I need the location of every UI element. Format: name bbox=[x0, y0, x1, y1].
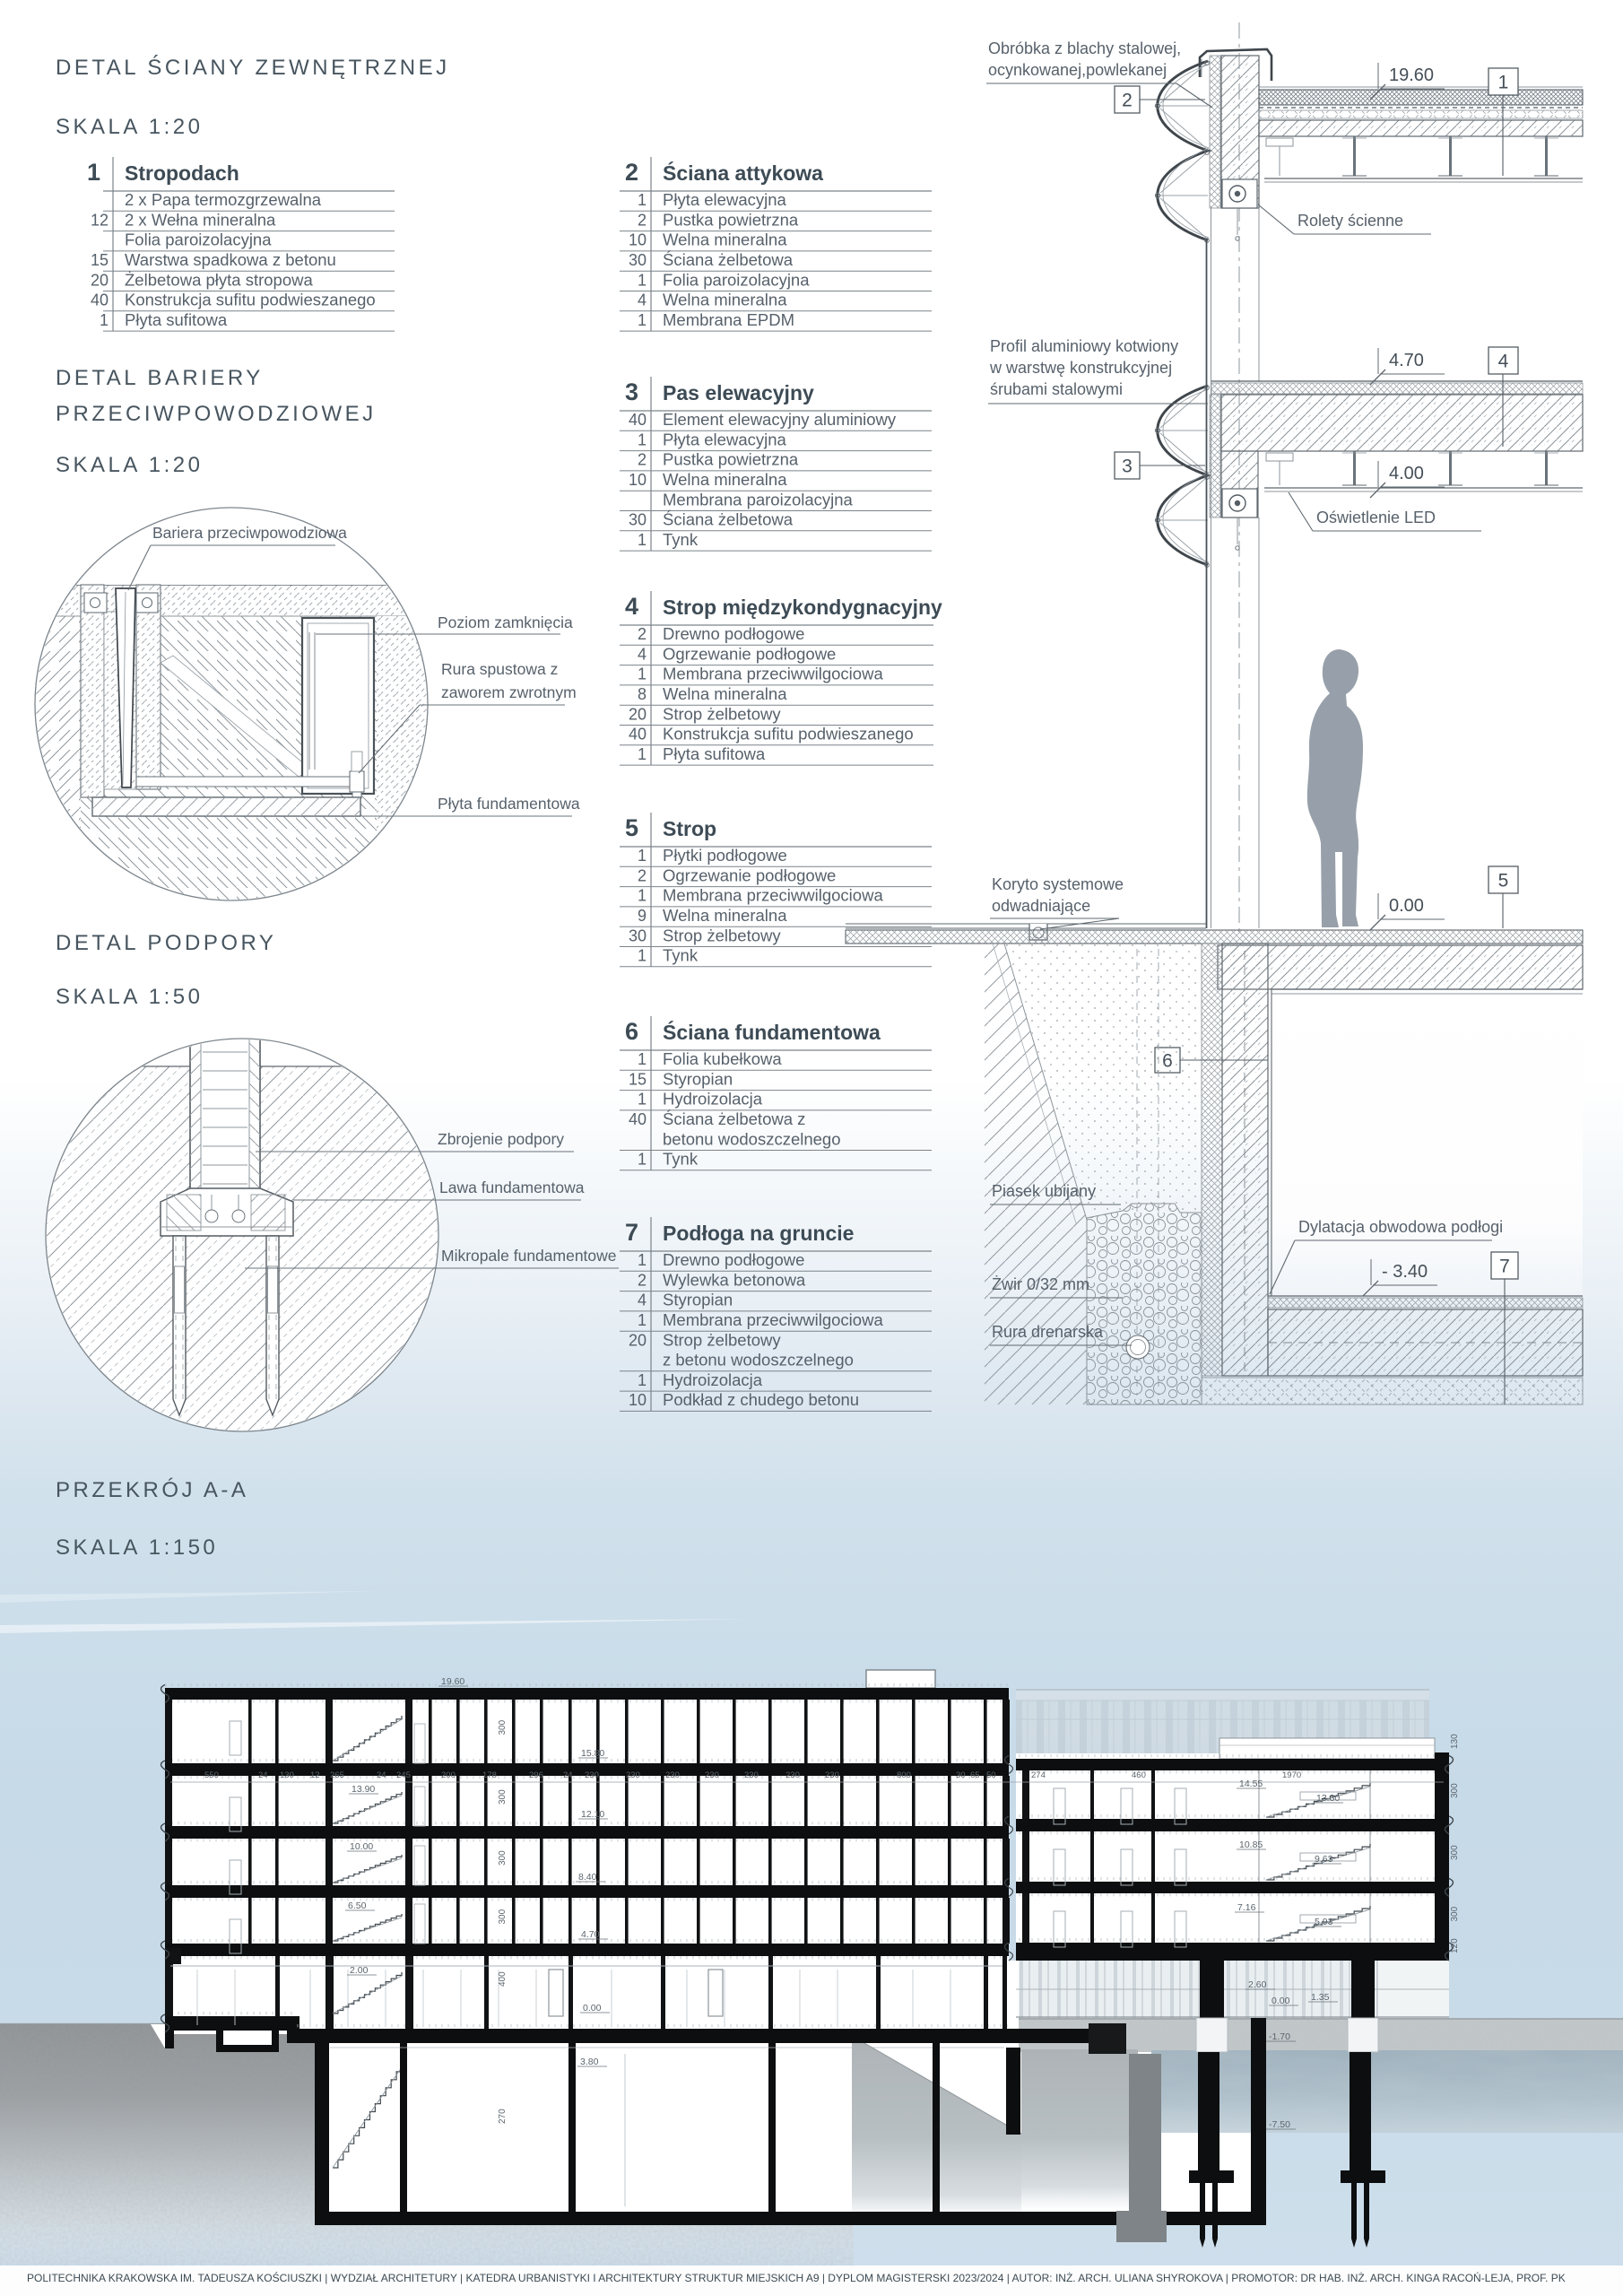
svg-text:Płyta elewacyjna: Płyta elewacyjna bbox=[663, 430, 787, 448]
svg-text:8: 8 bbox=[638, 685, 647, 703]
svg-text:2 x Papa termozgrzewalna: 2 x Papa termozgrzewalna bbox=[125, 190, 322, 209]
svg-text:5: 5 bbox=[1498, 871, 1509, 891]
svg-text:5.93: 5.93 bbox=[1315, 1917, 1333, 1927]
svg-text:274: 274 bbox=[1031, 1770, 1046, 1780]
svg-text:300: 300 bbox=[1450, 1845, 1460, 1860]
svg-text:betonu wodoszczelnego: betonu wodoszczelnego bbox=[663, 1129, 841, 1148]
svg-text:30: 30 bbox=[629, 511, 647, 529]
svg-text:460: 460 bbox=[1132, 1770, 1146, 1780]
svg-text:300: 300 bbox=[498, 1909, 508, 1924]
svg-text:130: 130 bbox=[1450, 1734, 1460, 1749]
svg-text:2: 2 bbox=[638, 211, 647, 229]
svg-text:2: 2 bbox=[625, 159, 638, 186]
svg-text:2 x Wełna mineralna: 2 x Wełna mineralna bbox=[125, 210, 276, 229]
svg-text:Tynk: Tynk bbox=[663, 946, 699, 965]
svg-text:Pas elewacyjny: Pas elewacyjny bbox=[663, 381, 814, 404]
svg-text:Drewno podłogowe: Drewno podłogowe bbox=[663, 624, 804, 643]
svg-text:2: 2 bbox=[638, 451, 647, 469]
svg-text:Pustka powietrzna: Pustka powietrzna bbox=[663, 210, 799, 229]
svg-text:550: 550 bbox=[204, 1770, 219, 1780]
svg-text:0.00: 0.00 bbox=[583, 2003, 602, 2013]
svg-text:Podłoga na gruncie: Podłoga na gruncie bbox=[663, 1222, 854, 1245]
svg-text:z betonu wodoszczelnego: z betonu wodoszczelnego bbox=[663, 1351, 854, 1370]
svg-text:Welna mineralna: Welna mineralna bbox=[663, 291, 787, 309]
svg-text:w warstwę konstrukcyjnej: w warstwę konstrukcyjnej bbox=[989, 359, 1172, 377]
svg-text:Welna mineralna: Welna mineralna bbox=[663, 230, 787, 249]
svg-text:4: 4 bbox=[638, 645, 647, 663]
svg-text:12.10: 12.10 bbox=[581, 1809, 604, 1820]
svg-text:Welna mineralna: Welna mineralna bbox=[663, 470, 787, 489]
svg-text:Wylewka betonowa: Wylewka betonowa bbox=[663, 1270, 806, 1289]
svg-text:24: 24 bbox=[563, 1770, 573, 1780]
svg-text:Tynk: Tynk bbox=[663, 1150, 699, 1169]
svg-text:300: 300 bbox=[1450, 1906, 1460, 1921]
svg-text:4.70: 4.70 bbox=[581, 1929, 600, 1940]
svg-text:Lawa fundamentowa: Lawa fundamentowa bbox=[439, 1178, 585, 1196]
svg-text:1: 1 bbox=[638, 191, 647, 209]
svg-text:19.60: 19.60 bbox=[1389, 65, 1434, 85]
svg-text:2: 2 bbox=[638, 625, 647, 643]
svg-text:2.00: 2.00 bbox=[350, 1965, 369, 1976]
svg-text:30: 30 bbox=[629, 251, 647, 269]
svg-text:24: 24 bbox=[258, 1770, 268, 1780]
svg-text:40: 40 bbox=[629, 726, 647, 744]
svg-text:15: 15 bbox=[91, 251, 108, 269]
svg-text:Welna mineralna: Welna mineralna bbox=[663, 906, 787, 925]
svg-text:1: 1 bbox=[638, 531, 647, 549]
svg-text:3: 3 bbox=[1122, 457, 1133, 477]
svg-text:12: 12 bbox=[91, 211, 108, 229]
svg-text:200: 200 bbox=[441, 1770, 456, 1780]
svg-text:Żelbetowa płyta stropowa: Żelbetowa płyta stropowa bbox=[125, 270, 313, 289]
svg-text:odwadniające: odwadniające bbox=[992, 897, 1090, 915]
svg-text:Rura spustowa z: Rura spustowa z bbox=[441, 660, 558, 678]
svg-text:Profil aluminiowy kotwiony: Profil aluminiowy kotwiony bbox=[990, 337, 1178, 355]
svg-text:120: 120 bbox=[1450, 1938, 1460, 1953]
svg-text:Strop żelbetowy: Strop żelbetowy bbox=[663, 704, 781, 723]
svg-text:- 3.40: - 3.40 bbox=[1382, 1262, 1428, 1282]
svg-text:230: 230 bbox=[626, 1770, 640, 1780]
svg-text:Oświetlenie LED: Oświetlenie LED bbox=[1316, 509, 1436, 526]
svg-text:4: 4 bbox=[625, 593, 638, 620]
svg-text:8.40: 8.40 bbox=[578, 1872, 597, 1883]
svg-text:40: 40 bbox=[629, 411, 647, 429]
svg-text:13.30: 13.30 bbox=[1316, 1793, 1340, 1804]
svg-text:1: 1 bbox=[638, 430, 647, 448]
svg-text:1: 1 bbox=[1498, 73, 1509, 93]
svg-text:Koryto systemowe: Koryto systemowe bbox=[992, 875, 1124, 893]
svg-text:245: 245 bbox=[396, 1770, 411, 1780]
svg-text:Rolety ścienne: Rolety ścienne bbox=[1298, 212, 1403, 230]
svg-text:1: 1 bbox=[638, 847, 647, 865]
svg-text:14.55: 14.55 bbox=[1239, 1779, 1263, 1789]
svg-text:40: 40 bbox=[91, 291, 108, 309]
svg-text:230: 230 bbox=[705, 1770, 719, 1780]
svg-text:300: 300 bbox=[1450, 1783, 1460, 1798]
svg-text:Hydroizolacja: Hydroizolacja bbox=[663, 1370, 763, 1389]
svg-text:230: 230 bbox=[665, 1770, 680, 1780]
svg-text:10: 10 bbox=[629, 231, 647, 249]
svg-text:15.80: 15.80 bbox=[581, 1748, 604, 1759]
svg-text:Strop żelbetowy: Strop żelbetowy bbox=[663, 926, 781, 944]
svg-text:2: 2 bbox=[638, 866, 647, 884]
svg-text:Dylatacja obwodowa podłogi: Dylatacja obwodowa podłogi bbox=[1298, 1218, 1503, 1236]
svg-text:Ściana żelbetowa z: Ściana żelbetowa z bbox=[663, 1109, 805, 1128]
svg-text:Płyta fundamentowa: Płyta fundamentowa bbox=[438, 795, 580, 813]
svg-text:178: 178 bbox=[482, 1770, 497, 1780]
svg-text:Pustka powietrzna: Pustka powietrzna bbox=[663, 450, 799, 469]
svg-text:800: 800 bbox=[897, 1770, 911, 1780]
svg-text:0.00: 0.00 bbox=[1389, 896, 1424, 916]
svg-text:1970: 1970 bbox=[1282, 1770, 1301, 1780]
svg-text:Styropian: Styropian bbox=[663, 1069, 733, 1088]
svg-text:Płyta sufitowa: Płyta sufitowa bbox=[125, 310, 228, 329]
svg-text:300: 300 bbox=[498, 1850, 508, 1865]
svg-text:Płyta sufitowa: Płyta sufitowa bbox=[663, 744, 766, 763]
svg-text:1: 1 bbox=[100, 311, 108, 329]
svg-text:Warstwa spadkowa z betonu: Warstwa spadkowa z betonu bbox=[125, 250, 336, 269]
svg-text:1: 1 bbox=[638, 271, 647, 289]
svg-text:Żwir 0/32 mm: Żwir 0/32 mm bbox=[992, 1275, 1089, 1293]
svg-text:4: 4 bbox=[638, 291, 647, 309]
svg-text:Piasek ubijany: Piasek ubijany bbox=[992, 1182, 1096, 1200]
svg-text:230: 230 bbox=[825, 1770, 839, 1780]
svg-text:1.35: 1.35 bbox=[1311, 1992, 1330, 2003]
svg-text:1: 1 bbox=[638, 665, 647, 683]
svg-text:Ogrzewanie podłogowe: Ogrzewanie podłogowe bbox=[663, 644, 836, 663]
svg-text:Ściana attykowa: Ściana attykowa bbox=[663, 161, 823, 185]
svg-text:Styropian: Styropian bbox=[663, 1291, 733, 1309]
svg-text:12: 12 bbox=[310, 1770, 320, 1780]
svg-text:1: 1 bbox=[638, 745, 647, 763]
svg-text:13.90: 13.90 bbox=[352, 1784, 375, 1795]
svg-text:5: 5 bbox=[625, 814, 638, 841]
svg-text:1: 1 bbox=[87, 159, 100, 186]
svg-text:Drewno podłogowe: Drewno podłogowe bbox=[663, 1250, 804, 1269]
svg-text:Rura drenarska: Rura drenarska bbox=[992, 1323, 1104, 1341]
svg-text:Strop: Strop bbox=[663, 817, 716, 840]
svg-text:Welna mineralna: Welna mineralna bbox=[663, 684, 787, 703]
svg-text:296: 296 bbox=[529, 1770, 543, 1780]
svg-text:3: 3 bbox=[625, 378, 638, 405]
svg-text:10: 10 bbox=[629, 471, 647, 489]
svg-text:300: 300 bbox=[498, 1789, 508, 1805]
svg-text:Folia paroizolacyjna: Folia paroizolacyjna bbox=[125, 230, 272, 249]
svg-text:24: 24 bbox=[377, 1770, 386, 1780]
svg-text:270: 270 bbox=[498, 2109, 508, 2124]
svg-text:Membrana paroizolacyjna: Membrana paroizolacyjna bbox=[663, 490, 854, 509]
svg-text:-7.50: -7.50 bbox=[1269, 2119, 1290, 2130]
svg-text:9: 9 bbox=[638, 907, 647, 925]
svg-text:230: 230 bbox=[585, 1770, 599, 1780]
svg-text:4.70: 4.70 bbox=[1389, 351, 1424, 370]
svg-text:Folia kubełkowa: Folia kubełkowa bbox=[663, 1049, 782, 1068]
svg-text:Obróbka z blachy stalowej,: Obróbka z blachy stalowej, bbox=[988, 39, 1181, 57]
svg-text:Podkład z chudego betonu: Podkład z chudego betonu bbox=[663, 1390, 859, 1409]
svg-text:1: 1 bbox=[638, 947, 647, 965]
svg-text:Płyta elewacyjna: Płyta elewacyjna bbox=[663, 190, 787, 209]
svg-text:300: 300 bbox=[498, 1719, 508, 1735]
svg-text:Stropodach: Stropodach bbox=[125, 161, 239, 185]
svg-text:2: 2 bbox=[1122, 91, 1133, 111]
svg-text:20: 20 bbox=[629, 705, 647, 723]
svg-text:50: 50 bbox=[986, 1770, 996, 1780]
svg-text:10.00: 10.00 bbox=[350, 1841, 373, 1852]
svg-text:Płytki podłogowe: Płytki podłogowe bbox=[663, 846, 787, 865]
svg-text:20: 20 bbox=[91, 271, 108, 289]
svg-text:7: 7 bbox=[1499, 1257, 1510, 1277]
svg-text:65: 65 bbox=[970, 1770, 980, 1780]
svg-text:7.16: 7.16 bbox=[1237, 1902, 1256, 1913]
svg-text:130: 130 bbox=[280, 1770, 294, 1780]
svg-text:Konstrukcja sufitu podwieszane: Konstrukcja sufitu podwieszanego bbox=[125, 291, 376, 309]
svg-text:4: 4 bbox=[1498, 352, 1509, 372]
svg-text:10.85: 10.85 bbox=[1239, 1839, 1263, 1850]
svg-text:Ściana żelbetowa: Ściana żelbetowa bbox=[663, 250, 794, 269]
svg-text:Hydroizolacja: Hydroizolacja bbox=[663, 1090, 763, 1109]
svg-text:2.60: 2.60 bbox=[1248, 1979, 1267, 1990]
svg-text:9.63: 9.63 bbox=[1315, 1854, 1333, 1865]
svg-text:Zbrojenie podpory: Zbrojenie podpory bbox=[438, 1130, 564, 1148]
svg-text:230: 230 bbox=[785, 1770, 800, 1780]
svg-text:230: 230 bbox=[744, 1770, 759, 1780]
svg-text:Tynk: Tynk bbox=[663, 530, 699, 549]
svg-text:Ściana żelbetowa: Ściana żelbetowa bbox=[663, 510, 794, 529]
svg-text:265: 265 bbox=[330, 1770, 344, 1780]
svg-text:Bariera przeciwpowodziowa: Bariera przeciwpowodziowa bbox=[152, 524, 347, 542]
svg-text:Folia paroizolacyjna: Folia paroizolacyjna bbox=[663, 270, 810, 289]
svg-text:4.00: 4.00 bbox=[1389, 464, 1424, 483]
svg-text:30: 30 bbox=[956, 1770, 966, 1780]
svg-text:400: 400 bbox=[498, 1971, 508, 1987]
svg-text:6.50: 6.50 bbox=[348, 1900, 367, 1911]
svg-text:Mikropale fundamentowe: Mikropale fundamentowe bbox=[441, 1247, 617, 1265]
svg-text:Poziom zamknięcia: Poziom zamknięcia bbox=[438, 613, 573, 631]
svg-text:1: 1 bbox=[638, 311, 647, 329]
svg-text:Membrana EPDM: Membrana EPDM bbox=[663, 310, 794, 329]
svg-text:30: 30 bbox=[629, 926, 647, 944]
svg-text:Ogrzewanie podłogowe: Ogrzewanie podłogowe bbox=[663, 865, 836, 884]
svg-text:ocynkowanej,powlekanej: ocynkowanej,powlekanej bbox=[988, 61, 1167, 79]
svg-text:-1.70: -1.70 bbox=[1269, 2031, 1290, 2042]
svg-text:śrubami stalowymi: śrubami stalowymi bbox=[990, 380, 1123, 398]
svg-text:1: 1 bbox=[638, 887, 647, 905]
svg-text:0.00: 0.00 bbox=[1271, 1996, 1290, 2006]
svg-text:3.80: 3.80 bbox=[580, 2057, 599, 2067]
svg-text:zaworem zwrotnym: zaworem zwrotnym bbox=[441, 683, 577, 701]
svg-text:Strop żelbetowy: Strop żelbetowy bbox=[663, 1330, 781, 1349]
